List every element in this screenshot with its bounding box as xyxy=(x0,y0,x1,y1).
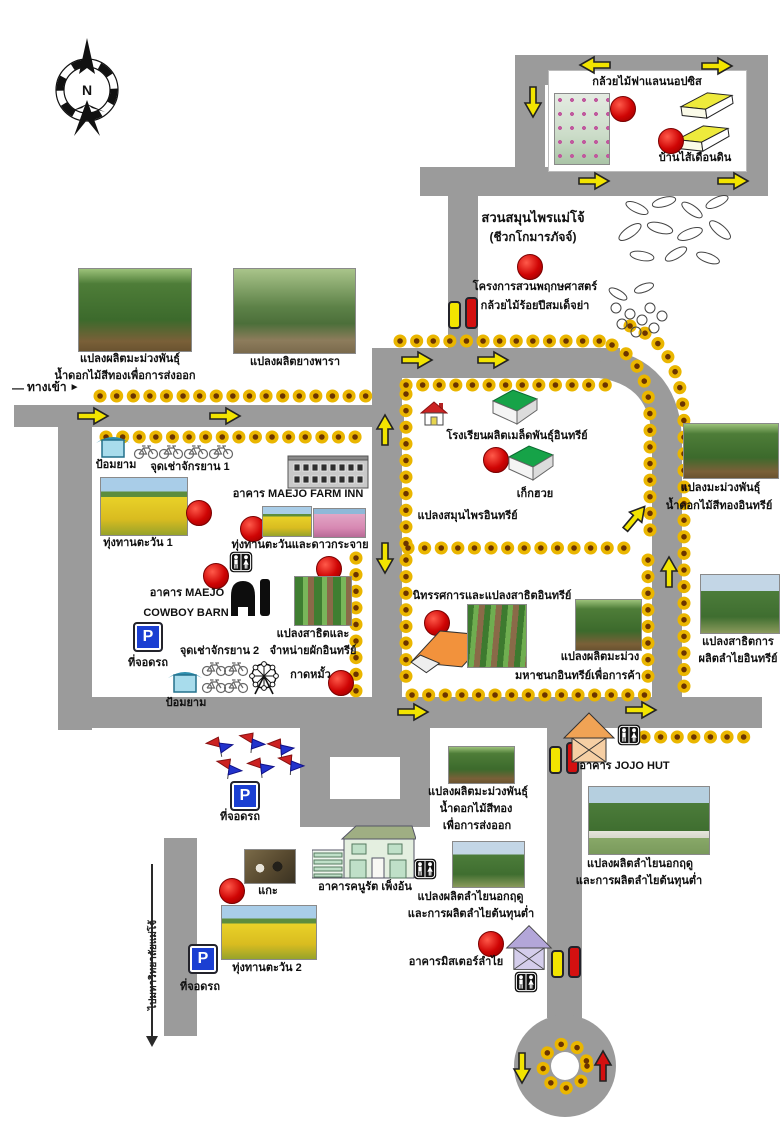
mango-plot-label-1: แปลงผลิตมะม่วงพันธุ์ xyxy=(40,353,220,366)
bike-rental-2-label: จุดเช่าจักรยาน 2 xyxy=(172,645,267,658)
mango-export-label-1: แปลงผลิตมะม่วงพันธุ์ xyxy=(418,786,538,799)
mango-export-label-3: เพื่อการส่งออก xyxy=(432,820,522,833)
seed-barn-icon xyxy=(490,388,540,426)
route-arrow-right xyxy=(577,171,611,191)
bicycle-icon xyxy=(183,443,209,460)
photo-mango-export xyxy=(448,746,515,784)
kanurat-building-label: อาคารคนูรัต เพ็งอ้น xyxy=(305,881,425,894)
photo-mango-plot xyxy=(78,268,192,352)
demo-plot-label-1: แปลงสาธิตและ xyxy=(268,628,358,641)
herb-garden-title: สวนสมุนไพรแม่โจ้ xyxy=(468,210,598,226)
photo-lettuce-rows xyxy=(467,604,527,668)
parking-letter: P xyxy=(198,950,209,968)
entrance-pointer-icon: ► xyxy=(70,382,80,393)
mango-right-label-2: น้ำดอกไม้สีทองอินทรีย์ xyxy=(658,500,780,513)
photo-demo-plot xyxy=(294,576,352,626)
gate-marker xyxy=(448,297,478,329)
route-arrow-right xyxy=(76,406,110,426)
compass-icon: N xyxy=(45,38,129,138)
orchid-house-title: กล้วยไม้ฟาแลนนอปซิส xyxy=(556,76,738,89)
route-arrow-right xyxy=(400,350,434,370)
market-wheel-icon xyxy=(245,660,283,696)
route-arrow-down xyxy=(512,1051,532,1085)
mister-longan-label: อาคารมิสเตอร์ลำไย xyxy=(400,956,512,969)
photo-sunflower-small xyxy=(262,506,312,537)
entrance-dash: — xyxy=(12,381,24,395)
kanurat-building-icon xyxy=(312,822,416,884)
photo-cosmos xyxy=(313,508,366,538)
guard-post-icon xyxy=(166,666,204,694)
parking-sign: P xyxy=(230,781,260,811)
flag-icon xyxy=(236,729,268,756)
farm-inn-label: อาคาร MAEJO FARM INN xyxy=(218,488,378,501)
longan-offseason-label-2: และการผลิตลำไยต้นทุนต่ำ xyxy=(402,908,540,921)
photo-mango-right xyxy=(683,423,779,479)
mango-mahachanok-label-1: แปลงผลิตมะม่วง xyxy=(550,651,650,664)
restroom-icon xyxy=(229,551,253,573)
parking-letter: P xyxy=(143,628,154,646)
parking-sign: P xyxy=(133,622,163,652)
route-arrow-right xyxy=(476,350,510,370)
restroom-icon xyxy=(514,971,538,993)
flag-icon xyxy=(212,755,245,783)
parking-sign: P xyxy=(188,944,218,974)
poi-marker xyxy=(658,128,684,154)
herb-plot-label: แปลงสมุนไพรอินทรีย์ xyxy=(400,510,535,523)
parking-label: ที่จอดรถ xyxy=(210,811,270,824)
entrance-label: — ทางเข้า ► xyxy=(12,378,79,397)
seed-school-label: โรงเรียนผลิตเมล็ดพันธุ์อินทรีย์ xyxy=(432,430,602,443)
house-icon xyxy=(420,400,448,427)
poi-marker xyxy=(610,96,636,122)
route-arrow-right xyxy=(208,406,242,426)
longan-demo-label-1: แปลงสาธิตการ xyxy=(696,636,780,649)
route-arrow-right xyxy=(624,700,658,720)
bike-rental-1-label: จุดเช่าจักรยาน 1 xyxy=(135,461,245,474)
sunflower-field-1-label: ทุ่งทานตะวัน 1 xyxy=(88,537,188,550)
parking-letter: P xyxy=(240,787,251,805)
farm-inn-building-icon xyxy=(287,455,369,489)
mango-mahachanok-label-2: มหาชนกอินทรีย์เพื่อการค้า xyxy=(503,670,653,683)
route-arrow-right xyxy=(716,171,750,191)
compass-north-label: N xyxy=(82,82,92,98)
bicycle-icon xyxy=(133,443,159,460)
photo-orchid xyxy=(554,93,610,165)
longan-offseason-label-1: แปลงผลิตลำไยนอกฤดู xyxy=(408,891,533,904)
restroom-icon xyxy=(413,858,437,880)
sunflower-field-2-label: ทุ่งทานตะวัน 2 xyxy=(222,962,312,975)
gate-marker xyxy=(551,946,581,978)
roundabout-center xyxy=(551,1052,579,1080)
photo-sunflower-field-1 xyxy=(100,477,188,536)
herb-garden-subtitle: (ชีวกโกมารภัจจ์) xyxy=(468,230,598,244)
demo-plot-label-2: จำหน่ายผักอินทรีย์ xyxy=(258,645,368,658)
exhibition-label: นิทรรศการและแปลงสาธิตอินทรีย์ xyxy=(402,590,582,603)
longan-fence-label-1: แปลงผลิตลำไยนอกฤดู xyxy=(575,858,705,871)
orchid-project-line2: กล้วยไม้ร้อยปีสมเด็จย่า xyxy=(458,300,612,313)
cowboy-barn-label-2: COWBOY BARN xyxy=(136,607,236,620)
jojo-hut-label: อาคาร JOJO HUT xyxy=(572,760,677,773)
small-loop-center xyxy=(330,757,400,799)
photo-rubber-plot xyxy=(233,268,356,354)
photo-sunflower-field-2 xyxy=(221,905,317,960)
earthworm-house-label: บ้านไส้เดือนดิน xyxy=(645,152,745,165)
guard-post-icon xyxy=(94,431,132,459)
bicycle-icon xyxy=(158,443,184,460)
route-arrow-up xyxy=(375,413,395,447)
poi-marker xyxy=(186,500,212,526)
route-arrow-right xyxy=(396,702,430,722)
rubber-plot-label: แปลงผลิตยางพารา xyxy=(230,356,360,369)
photo-longan-offseason xyxy=(452,841,525,888)
poi-marker xyxy=(219,878,245,904)
farm-map: N กล้วยไม้ฟาแลนนอปซิส บ้านไส้เดือนดิน สว… xyxy=(0,0,780,1139)
poi-marker xyxy=(478,931,504,957)
jojo-hut-icon xyxy=(561,710,617,766)
route-arrow-up xyxy=(659,555,679,589)
sheep-label: แกะ xyxy=(248,885,288,898)
photo-sheep xyxy=(244,849,296,884)
restroom-icon xyxy=(617,724,641,746)
longan-demo-label-2: ผลิตลำไยอินทรีย์ xyxy=(694,653,780,666)
photo-longan-fence xyxy=(588,786,710,855)
exit-road-label: ไปมหาวิทยาลัยแม่โจ้ xyxy=(146,920,161,1010)
exit-road-arrowhead xyxy=(146,1036,158,1047)
photo-mango-mahachanok xyxy=(575,599,642,651)
mango-right-label-1: แปลงมะม่วงพันธุ์ xyxy=(668,482,773,495)
chrysanthemum-label: เก็กฮวย xyxy=(505,488,565,501)
seed-barn-icon xyxy=(506,444,556,482)
route-arrow-left xyxy=(578,55,612,75)
parking-label: ที่จอดรถ xyxy=(170,981,230,994)
flag-icon xyxy=(245,754,277,781)
mango-export-label-2: น้ำดอกไม้สีทอง xyxy=(426,803,526,816)
cowboy-barn-label-1: อาคาร MAEJO xyxy=(142,587,232,600)
flag-icon xyxy=(275,752,307,778)
poi-marker xyxy=(517,254,543,280)
poi-marker xyxy=(328,670,354,696)
photo-longan-demo xyxy=(700,574,780,634)
bicycle-icon xyxy=(208,443,234,460)
route-arrow-up-red xyxy=(593,1049,613,1083)
route-arrow-down xyxy=(523,85,543,119)
longan-fence-label-2: และการผลิตลำไยต้นทุนต่ำ xyxy=(568,875,710,888)
entrance-text: ทางเข้า xyxy=(27,378,67,397)
guard-post-label: ป้อมยาม xyxy=(158,697,214,710)
route-arrow-right xyxy=(700,56,734,76)
botanical-sketch xyxy=(592,190,747,350)
